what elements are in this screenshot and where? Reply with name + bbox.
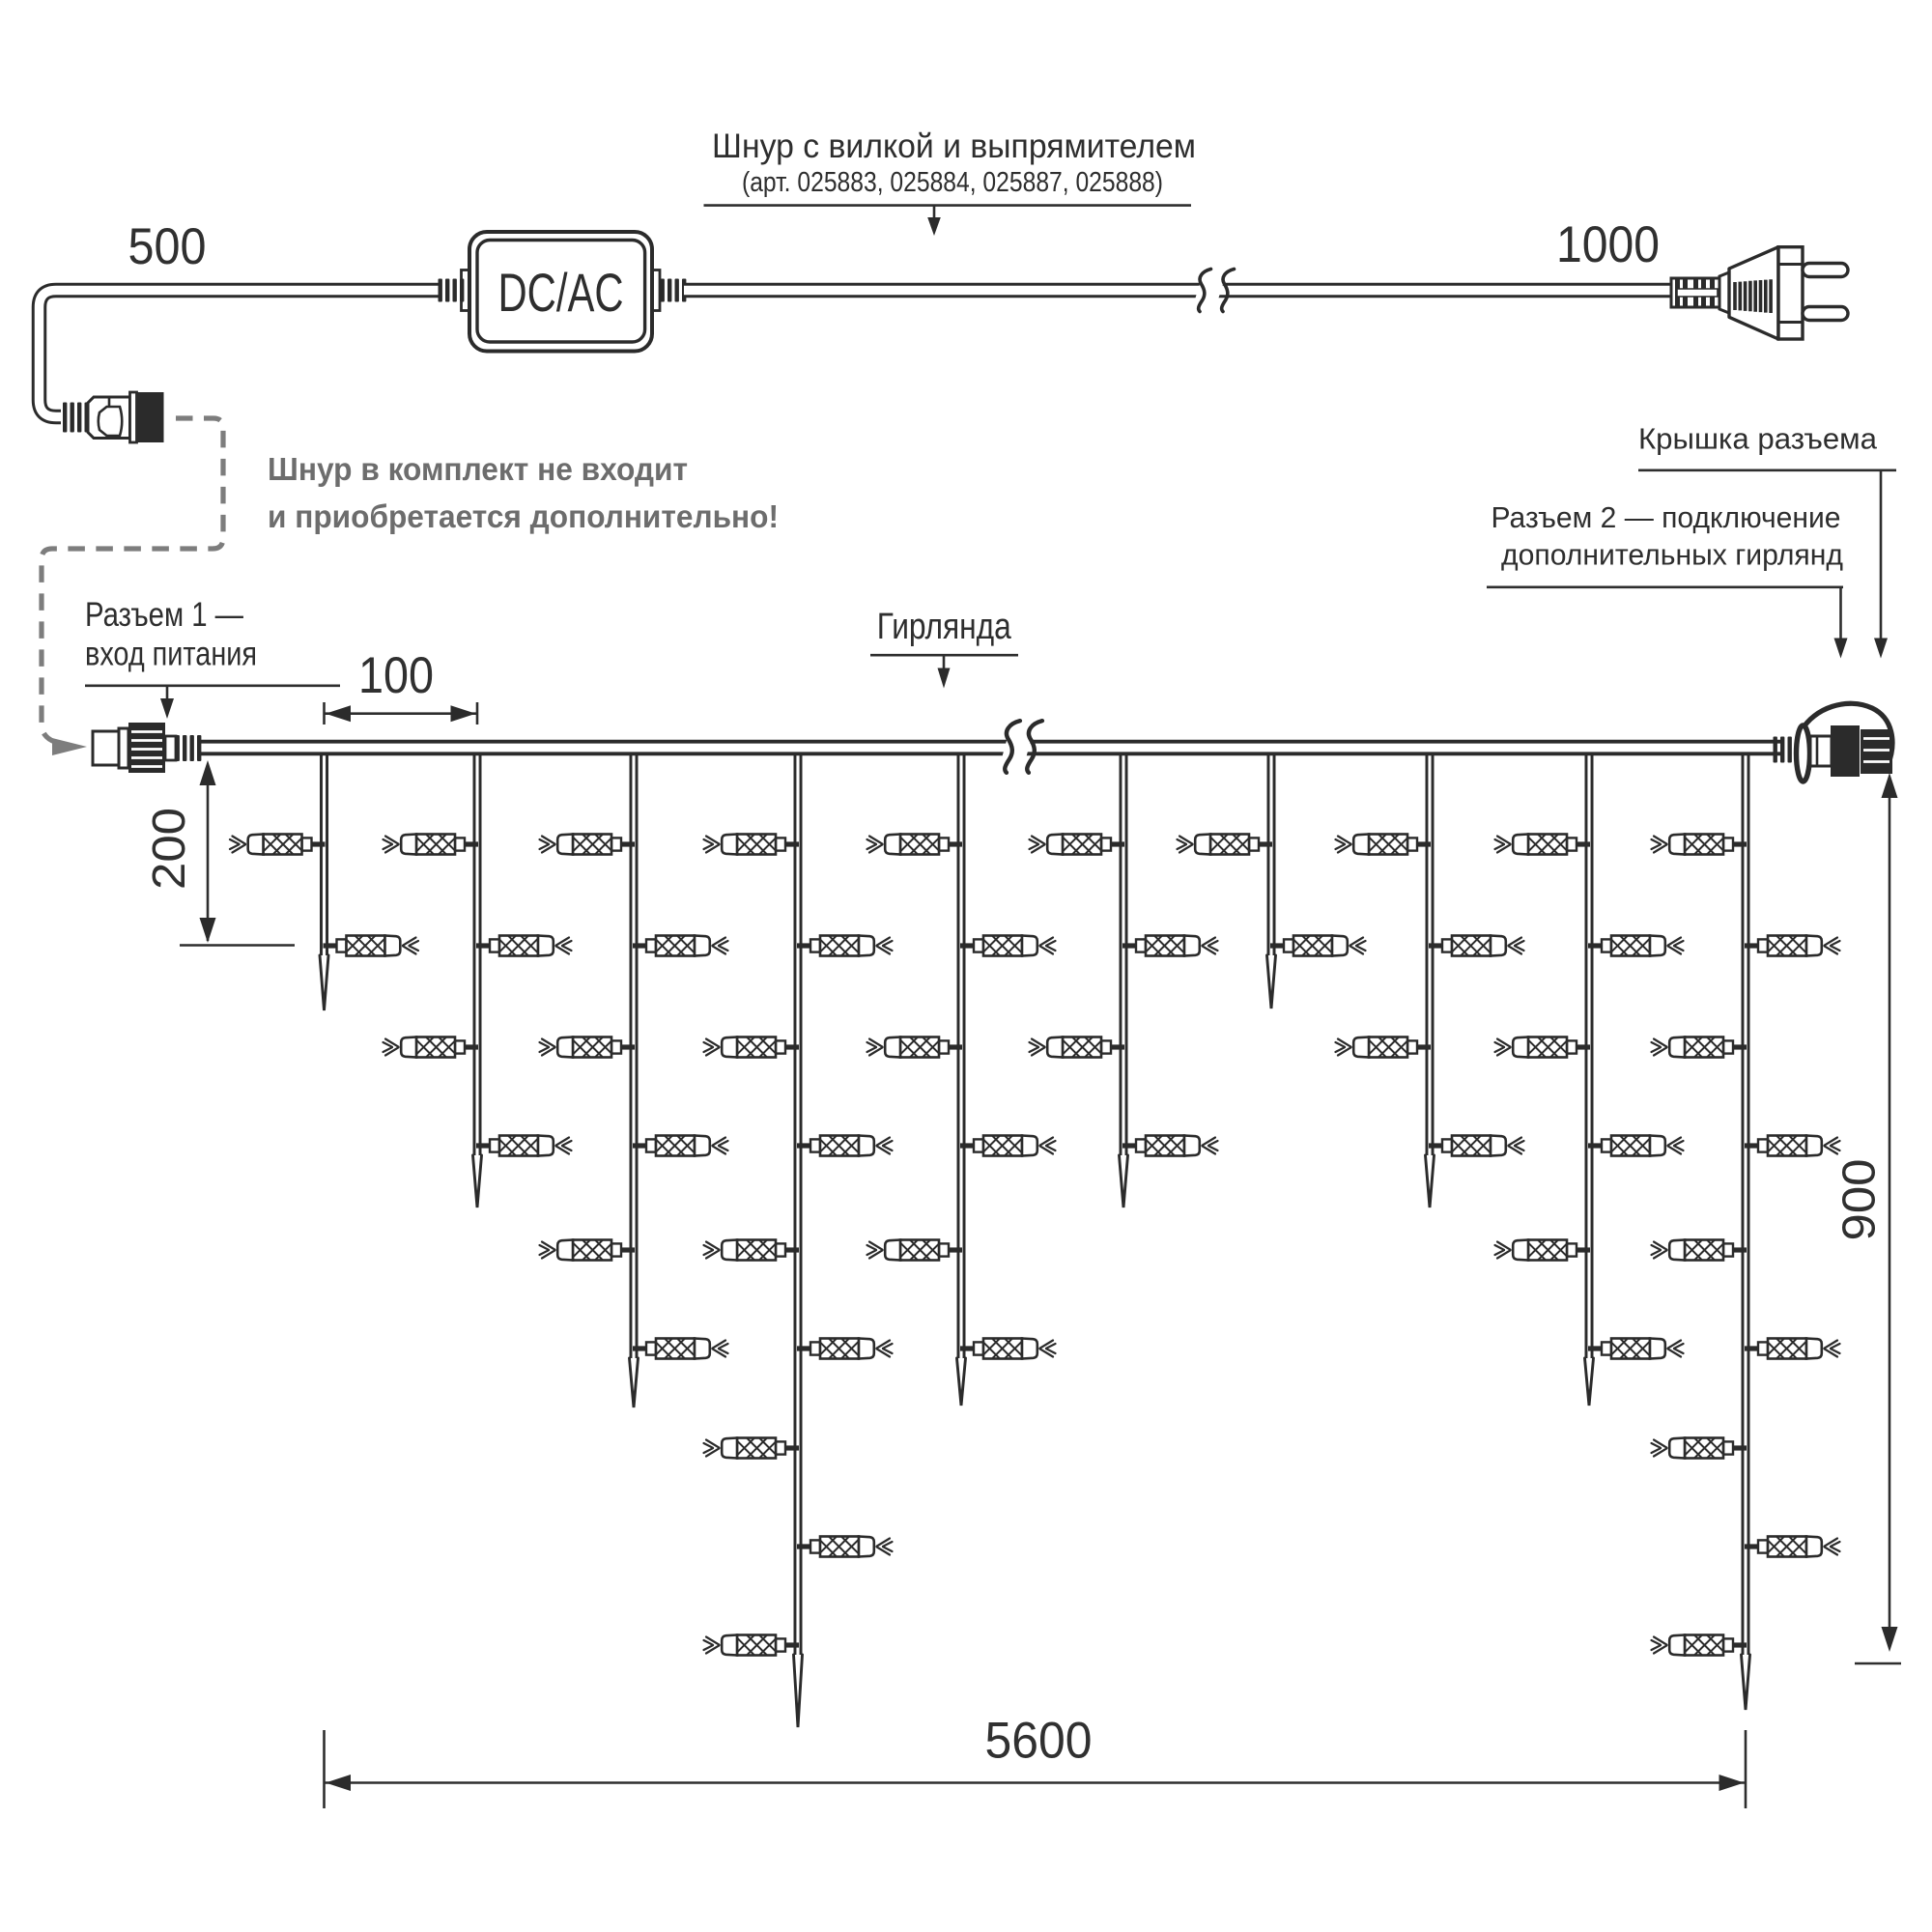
svg-text:Разъем 2 — подключение: Разъем 2 — подключение — [1492, 500, 1841, 534]
svg-text:Шнур в комплект не входит: Шнур в комплект не входит — [268, 451, 688, 487]
svg-text:100: 100 — [358, 647, 434, 704]
svg-text:и приобретается дополнительно!: и приобретается дополнительно! — [268, 498, 779, 534]
svg-text:200: 200 — [144, 808, 195, 890]
svg-text:Крышка разъема: Крышка разъема — [1638, 422, 1878, 456]
svg-text:Гирлянда: Гирлянда — [877, 607, 1012, 647]
svg-text:вход питания: вход питания — [85, 636, 257, 673]
svg-text:дополнительных гирлянд: дополнительных гирлянд — [1501, 538, 1843, 572]
svg-text:(арт. 025883, 025884, 025887,: (арт. 025883, 025884, 025887, 025888) — [742, 167, 1163, 198]
svg-text:900: 900 — [1834, 1159, 1886, 1241]
svg-text:1000: 1000 — [1556, 216, 1660, 273]
svg-text:Шнур с вилкой и выпрямителем: Шнур с вилкой и выпрямителем — [712, 128, 1196, 165]
svg-text:Разъем 1 —: Разъем 1 — — [85, 596, 243, 634]
svg-text:DC/AC: DC/AC — [498, 262, 624, 323]
svg-text:500: 500 — [128, 218, 207, 275]
svg-text:5600: 5600 — [985, 1713, 1093, 1770]
